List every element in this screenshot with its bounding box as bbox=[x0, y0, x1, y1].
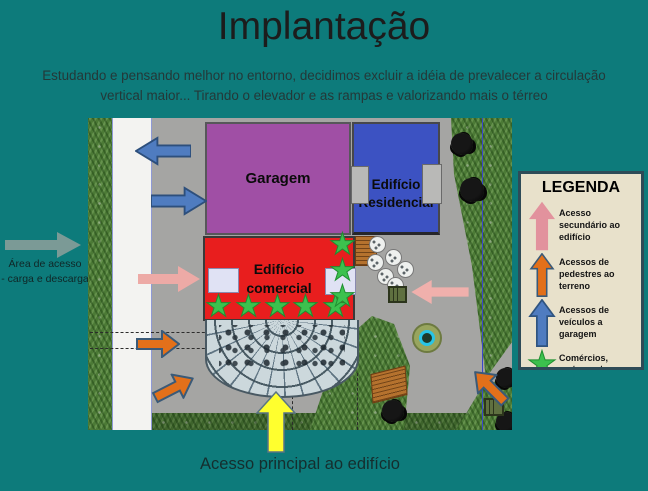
road-edge-line bbox=[112, 118, 113, 430]
star-icon: ★ bbox=[205, 292, 232, 322]
fountain-ring bbox=[419, 330, 435, 346]
legend-item-secondary-access: Acesso secundário ao edifício bbox=[525, 201, 637, 251]
presentation-slide: Implantação Estudando e pensando melhor … bbox=[0, 0, 648, 491]
garage-label: Garagem bbox=[245, 170, 310, 187]
slide-subtitle: Estudando e pensando melhor no entorno, … bbox=[24, 66, 624, 106]
vehicle-access-arrow-icon bbox=[151, 186, 207, 216]
residential-notch bbox=[422, 164, 442, 204]
blue-up-arrow-icon bbox=[525, 299, 559, 347]
legend-label: Comércios, restaurantes... bbox=[559, 353, 637, 370]
legend-title: LEGENDA bbox=[525, 179, 637, 197]
cargo-access-label: Área de acesso - carga e descarga bbox=[0, 257, 90, 286]
residential-notch bbox=[351, 166, 369, 204]
tree-icon bbox=[451, 133, 473, 155]
left-vegetation-strip bbox=[88, 118, 112, 430]
legend-item-pedestrian-access: Acessos de pedestres ao terreno bbox=[525, 253, 637, 297]
star-icon: ★ bbox=[264, 292, 291, 322]
main-access-label: Acesso principal ao edifício bbox=[140, 455, 460, 474]
page-title: Implantação bbox=[0, 5, 648, 49]
star-icon: ★ bbox=[235, 292, 262, 322]
vehicle-access-arrow-icon bbox=[135, 136, 191, 166]
cargo-access-line1: Área de acesso bbox=[9, 258, 82, 270]
legend-label: Acessos de veículos a garagem bbox=[559, 305, 637, 340]
planter-icon bbox=[397, 261, 414, 278]
cargo-access-line2: - carga e descarga bbox=[1, 273, 89, 285]
legend-label: Acesso secundário ao edifício bbox=[559, 208, 637, 243]
site-plan-map: Garagem Edifício Residencial Edifício co… bbox=[88, 118, 512, 430]
secondary-access-arrow-icon bbox=[410, 280, 470, 304]
pedestrian-access-arrow-icon bbox=[136, 330, 180, 358]
legend-item-commerce: ★ Comércios, restaurantes... bbox=[525, 349, 637, 370]
guide-line bbox=[357, 373, 358, 430]
legend-panel: LEGENDA Acesso secundário ao edifício Ac… bbox=[518, 171, 644, 370]
tree-icon bbox=[460, 178, 484, 202]
bench-icon bbox=[388, 286, 407, 303]
dome-tables bbox=[219, 325, 345, 369]
fountain-icon bbox=[412, 323, 442, 353]
orange-up-arrow-icon bbox=[525, 253, 559, 297]
star-icon: ★ bbox=[525, 349, 559, 370]
glass-dome bbox=[205, 320, 359, 398]
pink-up-arrow-icon bbox=[525, 201, 559, 251]
main-access-arrow-icon bbox=[256, 391, 296, 453]
star-icon: ★ bbox=[329, 282, 356, 312]
legend-label: Acessos de pedestres ao terreno bbox=[559, 257, 637, 292]
garage-building: Garagem bbox=[205, 122, 351, 235]
pedestrian-access-arrow-icon bbox=[148, 366, 200, 411]
tree-icon bbox=[382, 400, 404, 422]
cargo-access-arrow-icon bbox=[5, 232, 81, 258]
secondary-access-arrow-icon bbox=[138, 266, 200, 292]
legend-item-vehicle-access: Acessos de veículos a garagem bbox=[525, 299, 637, 347]
star-icon: ★ bbox=[292, 292, 319, 322]
planter-icon bbox=[369, 236, 386, 253]
